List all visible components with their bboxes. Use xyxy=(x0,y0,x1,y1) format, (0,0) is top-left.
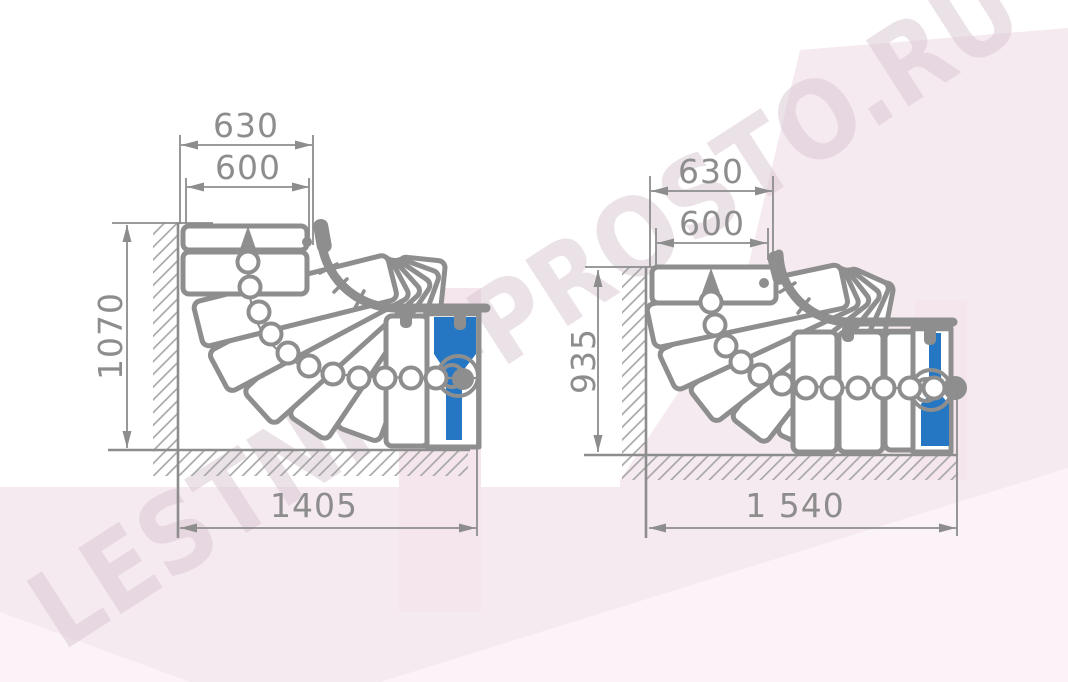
staircase-blueprint: LESTNICI-PROSTO.RU xyxy=(0,0,1068,682)
walkline-circle xyxy=(874,378,895,399)
floor-hatch-left xyxy=(153,450,468,476)
walkline-circle xyxy=(261,324,282,345)
walkline-circle xyxy=(323,364,344,385)
rail-stub xyxy=(924,326,936,345)
walkline-circle xyxy=(240,277,261,298)
walkline-circle xyxy=(731,352,752,373)
walkline-circle xyxy=(249,302,270,323)
walkline-circle xyxy=(900,378,921,399)
baluster-dot xyxy=(759,278,769,288)
dim-label-outer-width: 630 xyxy=(213,106,279,145)
dim-label-height: 1070 xyxy=(91,292,130,380)
dim-label-outer-width: 630 xyxy=(678,152,744,191)
walkline-circle xyxy=(238,252,259,273)
wall-hatch-left xyxy=(622,267,646,455)
walkline-circle xyxy=(848,378,869,399)
walkline-circle xyxy=(349,368,370,389)
walkline-circle xyxy=(796,378,817,399)
dim-label-inner-width: 600 xyxy=(215,148,281,187)
walkline-circle xyxy=(750,365,771,386)
floor-hatch xyxy=(622,455,958,480)
wall-hatch-left xyxy=(153,222,178,450)
dim-label-total-length: 1405 xyxy=(270,486,358,525)
dim-label-total-length: 1 540 xyxy=(745,486,844,525)
walkline-circle xyxy=(375,368,396,389)
rail-stub xyxy=(842,324,854,342)
walkline-circle xyxy=(701,292,722,313)
dim-label-inner-width: 600 xyxy=(679,204,745,243)
walkline-circle xyxy=(401,368,422,389)
dim-label-height: 935 xyxy=(564,328,603,394)
walkline-circle xyxy=(822,378,843,399)
baluster-dot xyxy=(302,237,312,247)
walkline-circle xyxy=(426,368,447,389)
drawing-canvas: LESTNICI-PROSTO.RU xyxy=(0,0,1068,682)
walkline-circle xyxy=(278,343,299,364)
rail-stub xyxy=(454,311,466,330)
walkline-circle xyxy=(299,356,320,377)
rail-stub xyxy=(400,310,412,328)
walkline-circle xyxy=(705,315,726,336)
walkline-circle xyxy=(772,374,793,395)
walkline-circle xyxy=(924,378,945,399)
